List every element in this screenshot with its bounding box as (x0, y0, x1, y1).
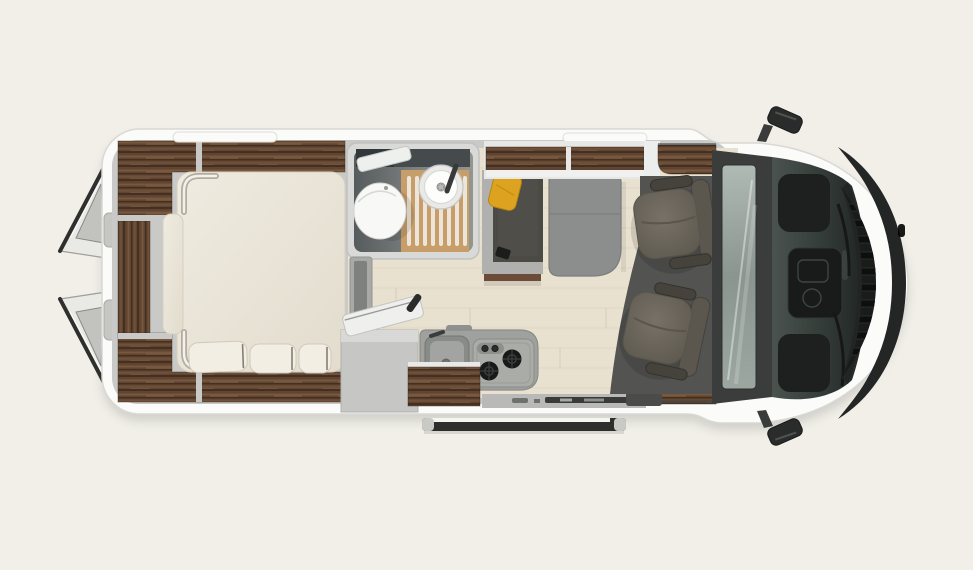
cab-door-trim-top (658, 145, 716, 174)
entry-step-well (626, 392, 662, 406)
rear-bed (163, 172, 345, 373)
entry-threshold (482, 392, 662, 408)
bench-plinth (484, 274, 541, 281)
campervan-floorplan (0, 0, 973, 570)
floorplan-image (0, 0, 973, 570)
toilet (354, 183, 406, 239)
hob-burner-left (480, 362, 499, 381)
bathroom-basin (419, 165, 463, 209)
bed-pillows (188, 341, 331, 373)
hob-knob-strip (477, 343, 504, 354)
sliding-door-rail (422, 418, 626, 434)
front-edge-nub (898, 224, 905, 237)
kitchen-front-panel (408, 367, 480, 406)
kitchen-hob (473, 339, 534, 387)
roof-vent-strip-front (563, 133, 647, 142)
kitchen-front-trim (408, 362, 480, 367)
roof-vent-strip-rear (173, 132, 277, 142)
hob-burner-right (503, 350, 522, 369)
dinette-table (549, 176, 621, 276)
bathroom (347, 143, 479, 259)
dinette (482, 170, 626, 286)
